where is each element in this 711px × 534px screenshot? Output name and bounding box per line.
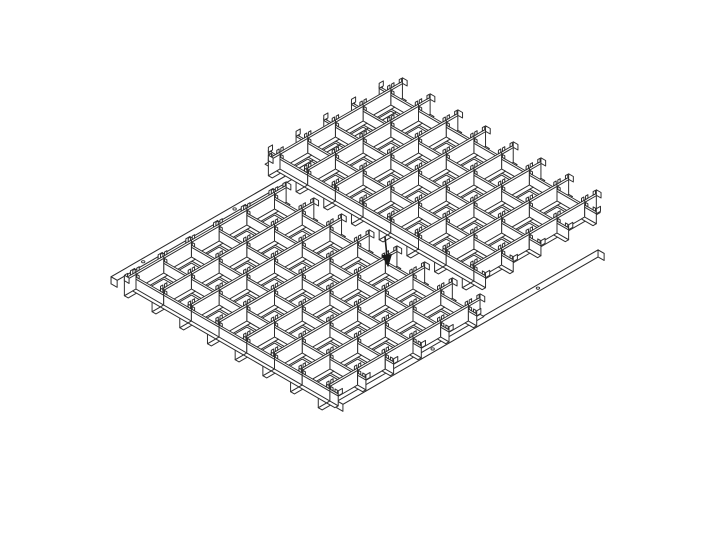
assembly-diagram-canvas (0, 0, 711, 534)
assembly-diagram-page (0, 0, 711, 534)
